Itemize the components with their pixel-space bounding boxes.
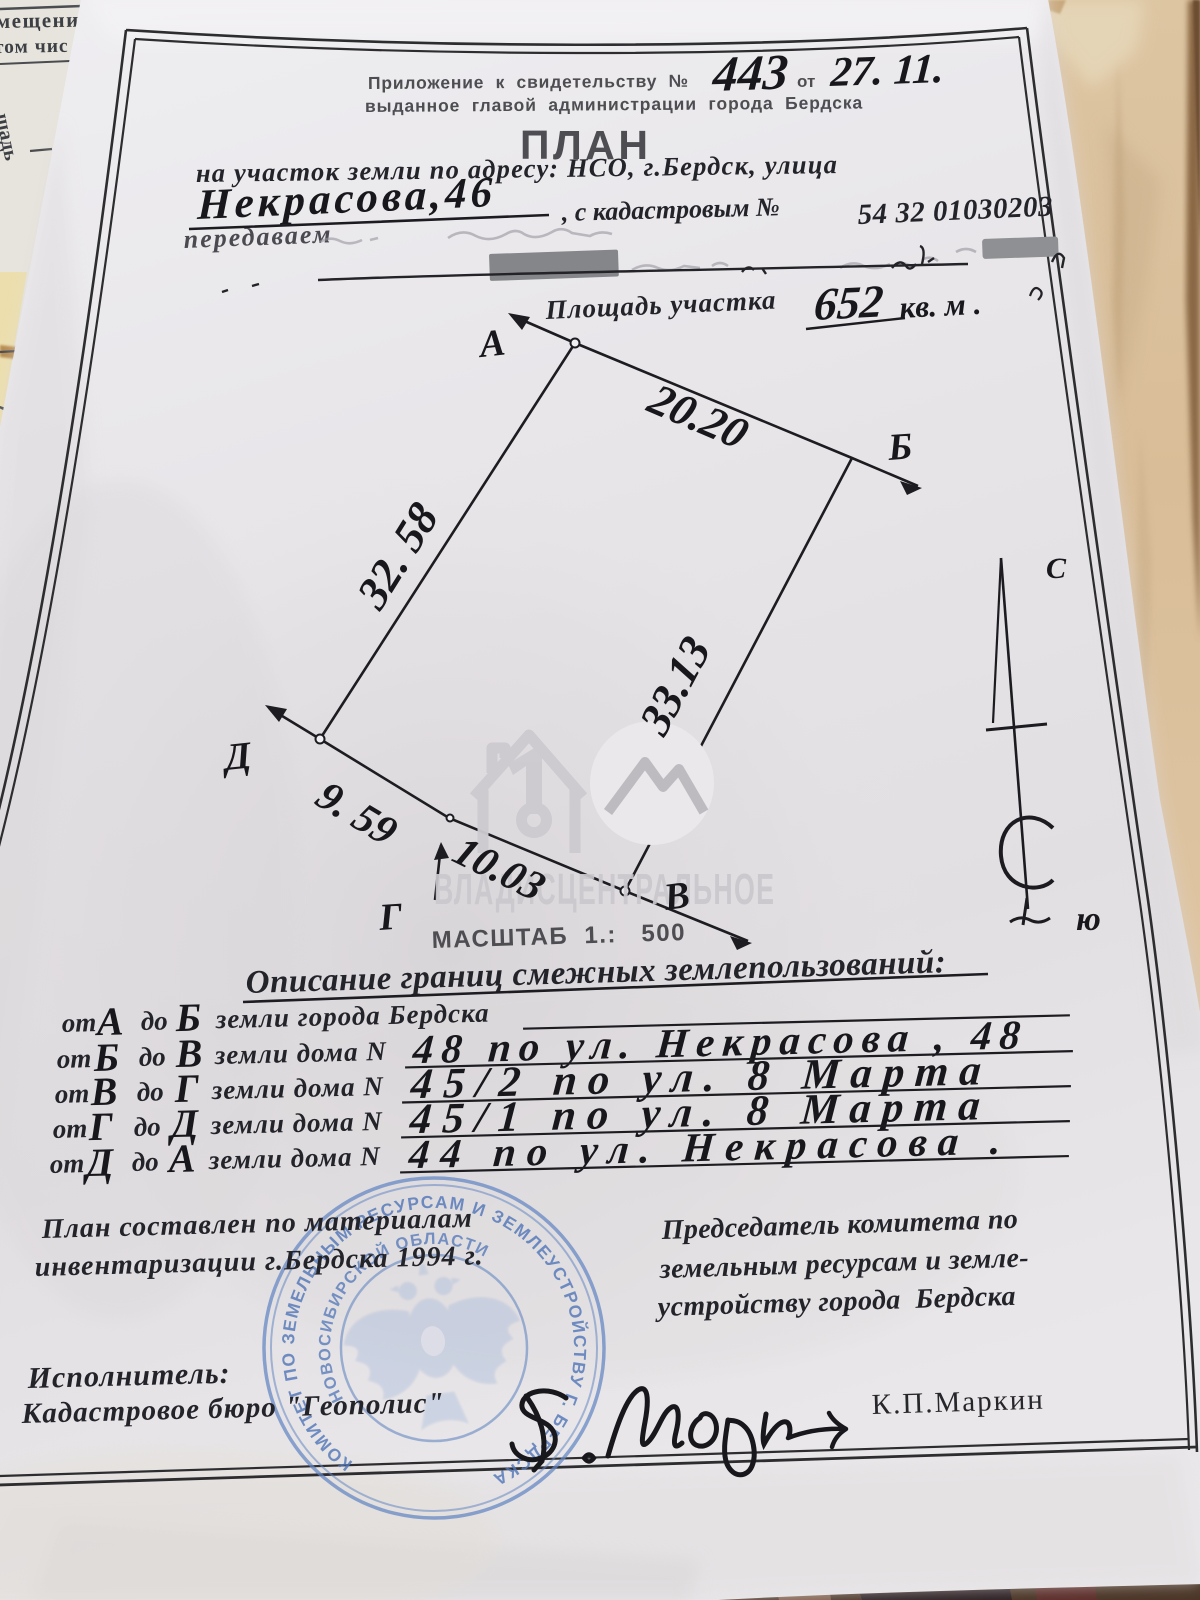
- svg-text:до: до: [131, 1146, 159, 1177]
- svg-text:до: до: [138, 1041, 166, 1072]
- svg-text:выданное главой администраци: выданное главой администрации города Бер…: [365, 93, 863, 116]
- svg-text:земли дома N: земли дома N: [209, 1106, 383, 1140]
- svg-text:том чис: том чис: [0, 36, 69, 58]
- svg-text:от: от: [56, 1043, 91, 1074]
- svg-text:передаваем: передаваем: [183, 219, 333, 254]
- svg-text:Приложение к свидетельству: Приложение к свидетельству №: [368, 71, 689, 93]
- svg-text:С: С: [1046, 552, 1067, 585]
- svg-text:Б: Б: [886, 425, 914, 469]
- svg-text:кв. м .: кв. м .: [899, 286, 983, 325]
- svg-text:мещени: мещени: [0, 8, 80, 33]
- svg-text:от: от: [797, 72, 815, 91]
- svg-text:ю: ю: [1076, 901, 1101, 938]
- svg-text:Г: Г: [377, 895, 405, 939]
- svg-text:от: от: [54, 1078, 89, 1109]
- svg-text:до: до: [140, 1005, 168, 1036]
- svg-text:от: от: [52, 1113, 87, 1144]
- svg-text:Д: Д: [81, 1139, 115, 1185]
- svg-text:до: до: [133, 1111, 161, 1142]
- svg-text:, с кадастровым №: , с кадастровым №: [560, 192, 786, 227]
- svg-text:земли дома N: земли дома N: [210, 1071, 384, 1105]
- svg-text:от: от: [61, 1007, 96, 1038]
- svg-text:К.П.Маркин: К.П.Маркин: [871, 1384, 1045, 1421]
- svg-text:земли дома N: земли дома N: [207, 1141, 381, 1175]
- svg-text:Исполнитель:: Исполнитель:: [26, 1357, 231, 1395]
- svg-text:А: А: [476, 322, 508, 367]
- svg-text:земли дома N: земли дома N: [213, 1036, 387, 1070]
- svg-text:от: от: [49, 1148, 84, 1179]
- svg-text:27. 11.: 27. 11.: [828, 45, 945, 96]
- svg-text:до: до: [136, 1076, 164, 1107]
- svg-text:А: А: [165, 1135, 196, 1181]
